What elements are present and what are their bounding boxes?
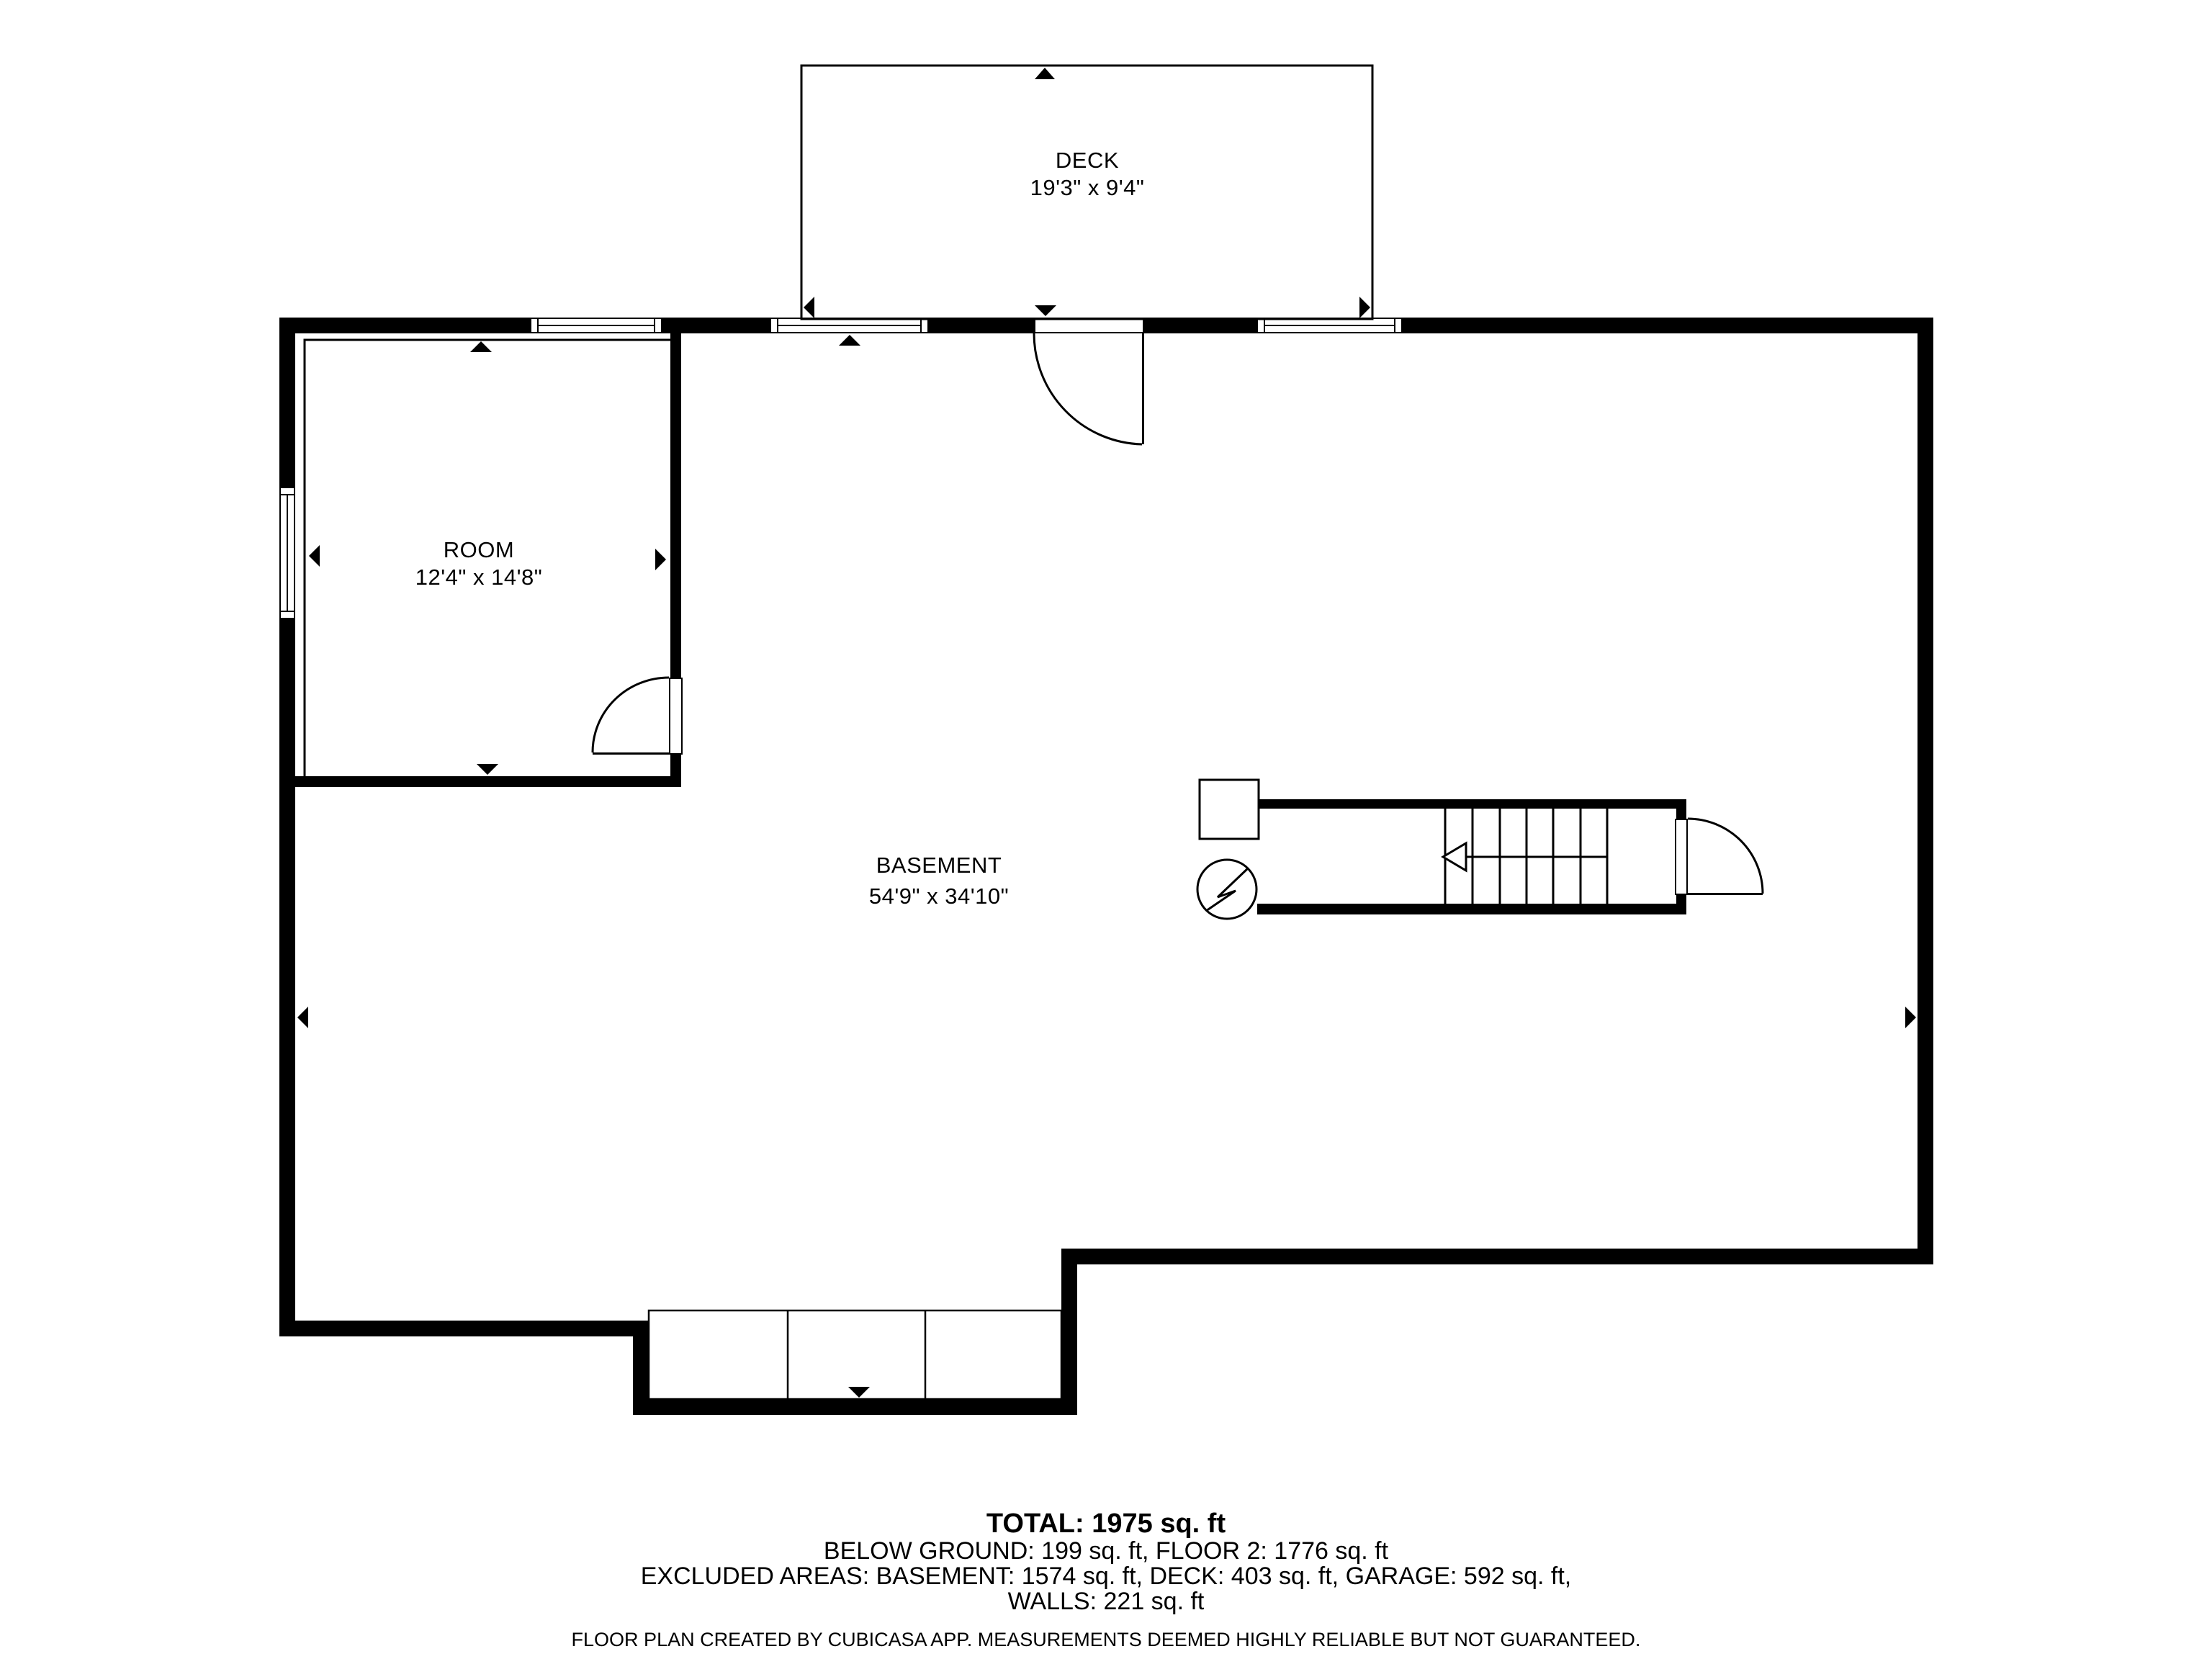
- deck-name: DECK: [907, 147, 1267, 174]
- basement-label: BASEMENT 54'9" x 34'10": [759, 852, 1119, 910]
- deck-door-leaf: [1142, 333, 1144, 444]
- stairs-door-opening: [1675, 819, 1688, 895]
- window-left: [279, 487, 295, 619]
- stair-treads: [1445, 809, 1607, 904]
- marker-room-bottom-icon: [477, 764, 498, 775]
- floor-plan: DECK 19'3" x 9'4" ROOM 12'4" x 14'8" BAS…: [0, 0, 2212, 1659]
- marker-topwall-icon: [839, 335, 860, 346]
- window-glass-line: [778, 325, 920, 326]
- marker-deck-right-icon: [1359, 297, 1370, 318]
- room-label: ROOM 12'4" x 14'8": [299, 536, 659, 591]
- deck-dimensions: 19'3" x 9'4": [907, 174, 1267, 202]
- deck-door-arc: [1034, 333, 1142, 444]
- room-name: ROOM: [299, 536, 659, 564]
- window-top-1: [530, 318, 662, 333]
- stairs-door-leaf: [1686, 893, 1763, 895]
- marker-basement-right-icon: [1905, 1007, 1916, 1028]
- plan-linework: [0, 0, 2212, 1659]
- marker-bumpout-icon: [848, 1387, 870, 1398]
- room-door-opening: [669, 678, 683, 755]
- marker-deck-top-icon: [1035, 68, 1055, 79]
- room-door-arc: [593, 678, 669, 752]
- deck-label: DECK 19'3" x 9'4": [907, 147, 1267, 202]
- marker-deck-door-icon: [1035, 305, 1056, 316]
- wall-stairs-bottom: [1257, 904, 1686, 914]
- walls-area: WALLS: 221 sq. ft: [0, 1589, 2212, 1614]
- lightning-bolt-icon: [1206, 868, 1248, 911]
- wall-bottom-left: [279, 1321, 649, 1336]
- room-dimensions: 12'4" x 14'8": [299, 564, 659, 591]
- window-glass-line: [287, 495, 288, 611]
- marker-deck-left-icon: [804, 297, 814, 318]
- basement-dimensions: 54'9" x 34'10": [759, 883, 1119, 910]
- deck-door-opening: [1034, 318, 1144, 333]
- basement-name: BASEMENT: [759, 852, 1119, 879]
- window-frame-line: [281, 611, 294, 612]
- window-glass-line: [1265, 325, 1394, 326]
- bumpout-panel-dividers: [788, 1310, 925, 1399]
- excluded-areas: EXCLUDED AREAS: BASEMENT: 1574 sq. ft, D…: [0, 1564, 2212, 1589]
- furnace-square-icon: [1200, 780, 1259, 839]
- window-frame-line: [920, 319, 922, 332]
- wall-left: [279, 318, 295, 1336]
- stairs-door-arc: [1688, 819, 1763, 894]
- wall-right: [1917, 318, 1933, 1264]
- marker-room-top-icon: [470, 341, 492, 352]
- window-top-2: [770, 318, 929, 333]
- electrical-circle-icon: [1197, 860, 1256, 919]
- bumpout-panel: [649, 1310, 1061, 1399]
- stairs-arrow-head: [1443, 843, 1466, 871]
- wall-bottom-right: [1061, 1249, 1933, 1264]
- disclaimer: FLOOR PLAN CREATED BY CUBICASA APP. MEAS…: [0, 1629, 2212, 1651]
- below-ground-area: BELOW GROUND: 199 sq. ft, FLOOR 2: 1776 …: [0, 1539, 2212, 1564]
- window-glass-line: [539, 325, 654, 326]
- wall-bumpout-bottom: [633, 1399, 1077, 1415]
- wall-stairs-top: [1257, 799, 1686, 809]
- total-area: TOTAL: 1975 sq. ft: [0, 1509, 2212, 1539]
- wall-room-bottom: [288, 776, 681, 787]
- wall-bumpout-right: [1061, 1249, 1077, 1415]
- window-top-3: [1256, 318, 1403, 333]
- area-summary: TOTAL: 1975 sq. ft BELOW GROUND: 199 sq.…: [0, 1509, 2212, 1614]
- room-door-leaf: [593, 752, 670, 755]
- window-frame-line: [1394, 319, 1395, 332]
- marker-basement-left-icon: [297, 1007, 308, 1028]
- window-frame-line: [654, 319, 655, 332]
